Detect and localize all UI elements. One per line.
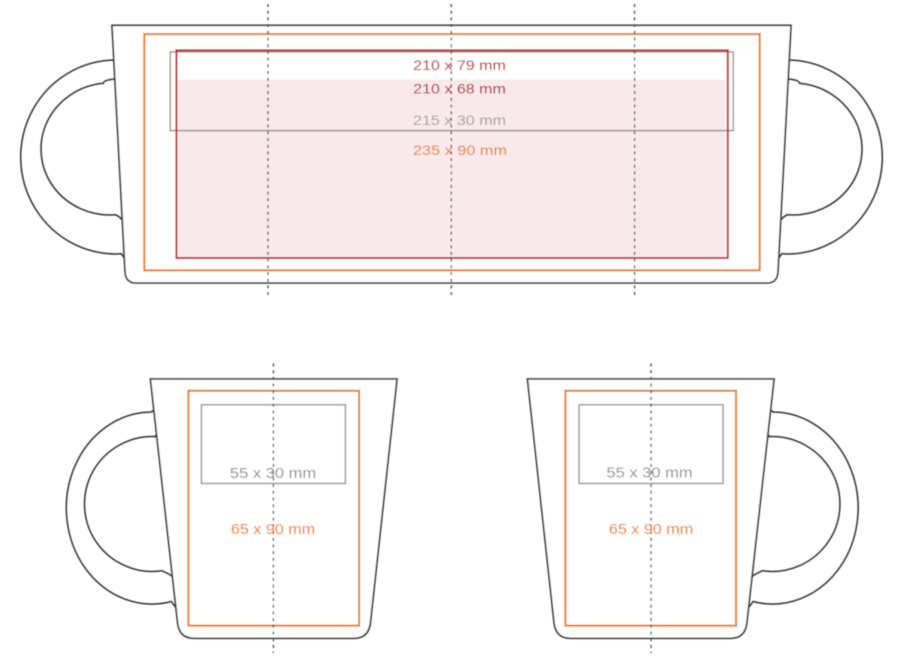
svg-text:55 x 30 mm: 55 x 30 mm bbox=[606, 465, 692, 482]
svg-text:55 x 30 mm: 55 x 30 mm bbox=[230, 465, 316, 482]
svg-text:65 x 90 mm: 65 x 90 mm bbox=[231, 521, 315, 538]
svg-text:215 x 30 mm: 215 x 30 mm bbox=[413, 113, 506, 128]
svg-text:65 x 90 mm: 65 x 90 mm bbox=[609, 521, 693, 538]
svg-text:235 x 90 mm: 235 x 90 mm bbox=[413, 143, 507, 158]
svg-text:210 x 79 mm: 210 x 79 mm bbox=[413, 58, 506, 73]
svg-text:210 x 68 mm: 210 x 68 mm bbox=[413, 82, 506, 97]
